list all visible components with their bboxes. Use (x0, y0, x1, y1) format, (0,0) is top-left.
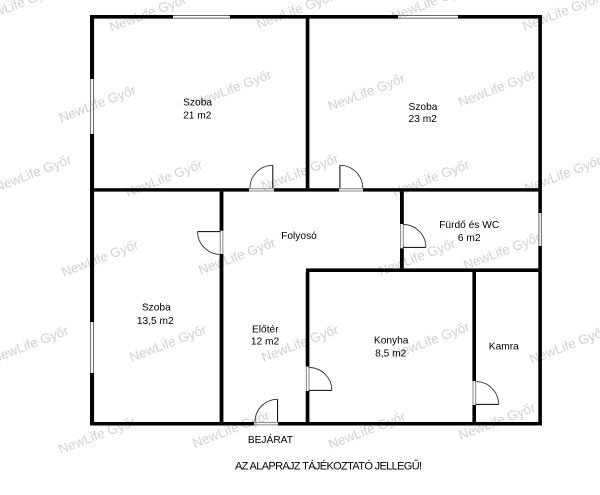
svg-text:Szoba: Szoba (409, 102, 438, 113)
svg-text:BEJÁRAT: BEJÁRAT (248, 433, 293, 446)
svg-text:NewLife Győr: NewLife Győr (123, 157, 205, 200)
svg-text:Kamra: Kamra (489, 341, 519, 352)
svg-text:Szoba: Szoba (183, 98, 212, 109)
svg-text:AZ ALAPRAJZ TÁJÉKOZTATÓ JELLEG: AZ ALAPRAJZ TÁJÉKOZTATÓ JELLEGŰ! (235, 459, 422, 473)
svg-text:NewLife Győr: NewLife Győr (0, 323, 71, 366)
svg-text:Előtér: Előtér (252, 325, 279, 336)
svg-text:NewLife Győr: NewLife Győr (456, 400, 538, 443)
svg-text:NewLife Győr: NewLife Győr (196, 235, 278, 278)
svg-text:NewLife Győr: NewLife Győr (127, 322, 209, 365)
svg-text:NewLife Győr: NewLife Győr (389, 0, 471, 24)
svg-text:23 m2: 23 m2 (409, 114, 438, 125)
svg-text:NewLife Győr: NewLife Győr (456, 67, 538, 110)
svg-text:Fürdő és WC: Fürdő és WC (439, 220, 499, 231)
svg-text:NewLife Győr: NewLife Győr (59, 237, 141, 280)
svg-text:NewLife Győr: NewLife Győr (0, 0, 58, 26)
svg-text:NewLife Győr: NewLife Győr (326, 409, 408, 452)
svg-text:NewLife Győr: NewLife Győr (57, 82, 139, 125)
svg-text:13,5 m2: 13,5 m2 (137, 316, 174, 327)
svg-text:Konyha: Konyha (374, 336, 409, 347)
svg-text:NewLife Győr: NewLife Győr (259, 151, 341, 194)
svg-text:NewLife Győr: NewLife Győr (376, 236, 458, 279)
svg-text:NewLife Győr: NewLife Győr (56, 414, 138, 457)
svg-text:NewLife Győr: NewLife Győr (527, 324, 600, 367)
svg-text:Szoba: Szoba (142, 302, 171, 313)
svg-text:8,5 m2: 8,5 m2 (375, 349, 406, 360)
svg-text:6 m2: 6 m2 (458, 233, 481, 244)
svg-text:12 m2: 12 m2 (251, 337, 280, 348)
svg-text:NewLife Győr: NewLife Győr (0, 152, 74, 195)
svg-text:Folyosó: Folyosó (281, 231, 317, 242)
svg-text:NewLife Győr: NewLife Győr (326, 71, 408, 114)
svg-text:21 m2: 21 m2 (183, 111, 212, 122)
